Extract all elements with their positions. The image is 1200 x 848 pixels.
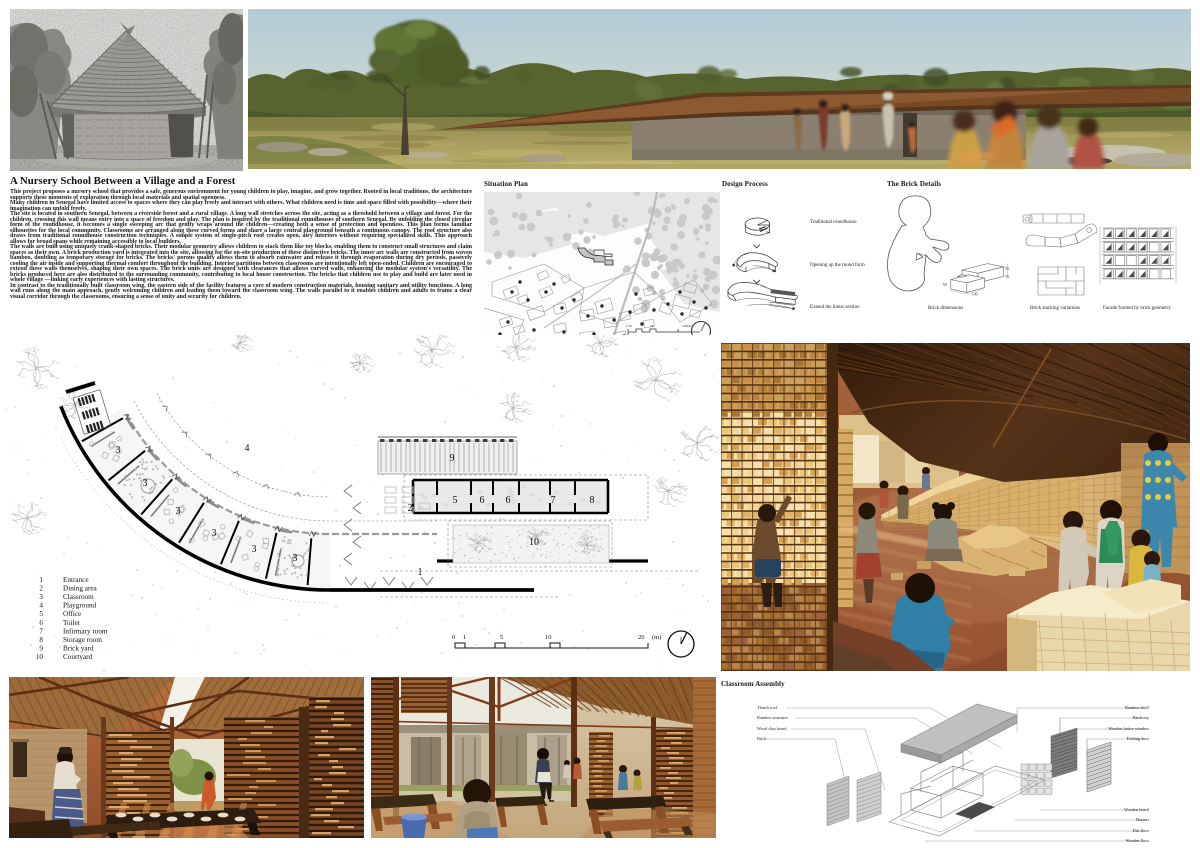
svg-text:6: 6 [480,495,485,506]
svg-text:5: 5 [500,634,503,641]
svg-text:50: 50 [1005,266,1009,271]
svg-text:6: 6 [506,495,511,506]
svg-text:Office: Office [63,610,81,618]
svg-text:2: 2 [408,503,413,514]
svg-text:1: 1 [463,634,466,641]
svg-text:10: 10 [529,537,539,548]
svg-text:2: 2 [39,585,43,593]
svg-text:20: 20 [638,634,645,641]
svg-text:Courtyard: Courtyard [63,653,93,661]
svg-text:5: 5 [39,610,43,618]
svg-text:0 10: 0 10 [626,324,632,328]
svg-text:9: 9 [39,644,43,652]
svg-text:1: 1 [39,576,43,584]
svg-text:3: 3 [39,593,43,601]
svg-text:Playground: Playground [63,602,97,610]
svg-text:4: 4 [39,602,43,610]
svg-text:100(m): 100(m) [682,324,693,328]
svg-text:3: 3 [143,478,148,489]
svg-text:6: 6 [39,619,43,627]
svg-text:4: 4 [245,443,250,454]
svg-text:7: 7 [39,627,43,635]
svg-text:0: 0 [452,634,455,641]
svg-text:10: 10 [36,653,44,661]
svg-text:3: 3 [176,506,181,517]
svg-text:1: 1 [418,567,423,578]
svg-text:50: 50 [943,282,947,287]
svg-text:Infirmary room: Infirmary room [63,627,108,635]
svg-text:Entrance: Entrance [63,576,89,584]
svg-text:8: 8 [39,636,43,644]
svg-text:3: 3 [116,445,121,456]
svg-text:3: 3 [212,528,217,539]
svg-text:Classroom: Classroom [63,593,94,601]
svg-text:(m): (m) [652,634,661,641]
svg-text:Brick yard: Brick yard [63,644,94,652]
svg-text:50: 50 [650,324,654,328]
svg-text:5: 5 [453,495,458,506]
svg-text:Storage room: Storage room [63,636,102,644]
svg-text:10: 10 [545,634,552,641]
svg-text:Dining area: Dining area [63,585,98,593]
svg-text:3: 3 [293,553,298,564]
svg-text:3: 3 [252,544,257,555]
svg-text:50: 50 [1005,274,1009,279]
svg-text:9: 9 [450,453,455,464]
svg-text:7: 7 [551,495,556,506]
svg-text:8: 8 [590,495,595,506]
svg-text:Toilet: Toilet [63,619,80,627]
